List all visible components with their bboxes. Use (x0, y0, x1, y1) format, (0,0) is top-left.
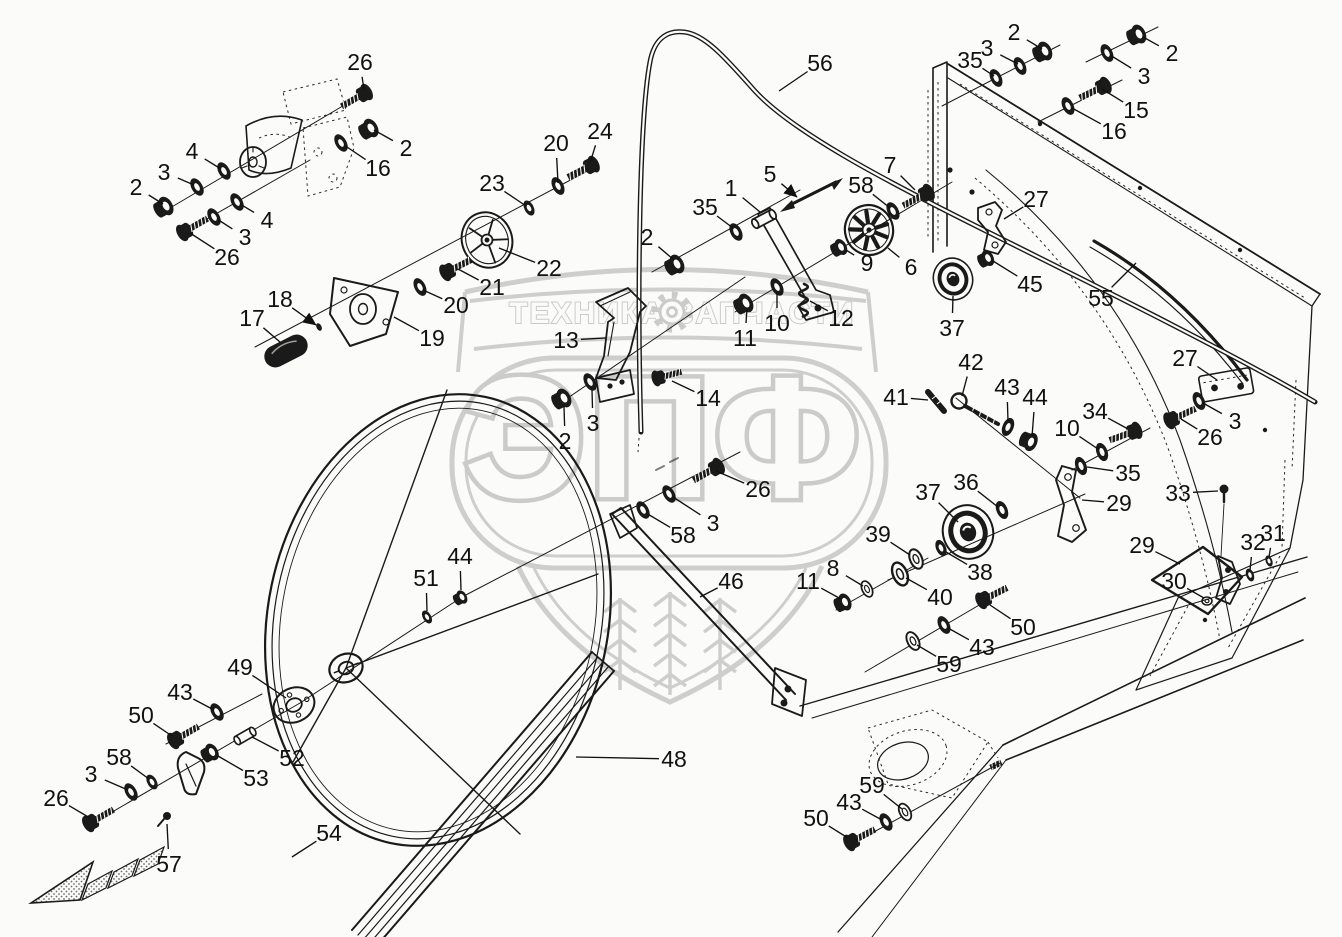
callout-label-34: 34 (1082, 398, 1108, 424)
leader-line-9 (846, 250, 854, 255)
leader-line-34 (1108, 418, 1128, 429)
callout-label-3: 3 (1138, 63, 1151, 89)
callout-label-16: 16 (1101, 118, 1127, 144)
leader-line-2 (658, 247, 674, 260)
leader-line-43 (1007, 402, 1008, 421)
callout-label-5: 5 (764, 161, 777, 187)
leader-line-3 (592, 390, 593, 408)
leader-line-29 (1155, 552, 1180, 564)
callout-label-11: 11 (796, 568, 820, 594)
link-rod (780, 178, 843, 212)
grease-screw (1220, 485, 1229, 557)
callout-label-3: 3 (239, 224, 252, 250)
leader-line-54 (292, 841, 316, 857)
leader-line-39 (891, 542, 911, 555)
callout-label-59: 59 (936, 651, 962, 677)
callout-label-52: 52 (279, 745, 305, 771)
callout-label-17: 17 (239, 305, 265, 331)
callout-label-2: 2 (641, 224, 654, 250)
leader-line-15 (1102, 89, 1123, 102)
callout-label-8: 8 (827, 555, 840, 581)
callout-label-3: 3 (158, 159, 171, 185)
callout-label-2: 2 (559, 428, 572, 454)
callout-label-29: 29 (1129, 532, 1155, 558)
callout-label-36: 36 (953, 469, 979, 495)
callout-label-19: 19 (419, 325, 445, 351)
leader-line-10 (1079, 436, 1098, 449)
callout-label-43: 43 (994, 374, 1020, 400)
callout-label-59: 59 (859, 772, 885, 798)
callout-label-10: 10 (1054, 415, 1080, 441)
leader-line-56 (779, 72, 808, 92)
callout-label-6: 6 (905, 254, 918, 280)
leader-line-5 (781, 184, 797, 197)
callout-label-49: 49 (227, 654, 253, 680)
leader-line-46 (700, 588, 718, 597)
callout-label-50: 50 (1010, 614, 1036, 640)
leader-line-20 (423, 290, 442, 299)
leader-line-58 (131, 766, 149, 779)
leader-line-48 (576, 757, 659, 759)
leader-line-2 (564, 406, 565, 426)
callout-label-27: 27 (1172, 345, 1198, 371)
callout-label-15: 15 (1123, 97, 1149, 123)
leader-line-3 (105, 780, 128, 790)
leader-line-43 (193, 699, 214, 710)
leader-line-40 (906, 578, 927, 590)
callout-label-13: 13 (553, 327, 579, 353)
clevis-rod (952, 394, 999, 426)
callout-label-57: 57 (156, 851, 182, 877)
leader-line-35 (1087, 467, 1113, 471)
drive-belt (352, 652, 614, 937)
callout-label-4: 4 (186, 138, 199, 164)
callout-label-24: 24 (587, 118, 613, 144)
callout-label-50: 50 (803, 805, 829, 831)
leader-line-59 (884, 794, 902, 809)
callout-label-58: 58 (848, 172, 874, 198)
callout-label-2: 2 (400, 135, 413, 161)
leader-line-26 (69, 806, 90, 818)
callout-label-40: 40 (927, 584, 953, 610)
callout-label-26: 26 (214, 244, 240, 270)
callout-label-26: 26 (1197, 424, 1223, 450)
callout-label-26: 26 (745, 476, 771, 502)
callout-label-29: 29 (1106, 490, 1132, 516)
callout-label-56: 56 (807, 50, 833, 76)
handle-grip (261, 331, 312, 371)
parts-diagram-page: ТЕХНИКА ЗАПЧАСТИ ЭПФ (0, 0, 1342, 937)
callout-label-10: 10 (764, 310, 790, 336)
callout-label-51: 51 (413, 565, 439, 591)
leader-line-16 (344, 145, 366, 160)
callout-label-12: 12 (828, 305, 854, 331)
cone-pin-57 (158, 812, 171, 826)
leader-line-3 (1110, 55, 1131, 68)
callout-label-58: 58 (106, 744, 132, 770)
leader-line-1 (743, 198, 760, 212)
leader-line-53 (218, 756, 243, 771)
leader-line-50 (990, 605, 1011, 619)
callout-label-9: 9 (861, 250, 874, 276)
leader-line-2 (1143, 37, 1159, 46)
callout-label-39: 39 (865, 521, 891, 547)
callout-label-26: 26 (43, 785, 69, 811)
callout-label-30: 30 (1161, 568, 1187, 594)
leader-line-43 (948, 628, 969, 640)
callout-label-2: 2 (1008, 19, 1021, 45)
strap-bracket-29 (1056, 466, 1086, 542)
leader-line-6 (888, 248, 899, 257)
callout-label-44: 44 (1022, 384, 1048, 410)
leader-line-36 (978, 491, 998, 507)
callout-label-55: 55 (1088, 285, 1114, 311)
callout-label-3: 3 (587, 410, 600, 436)
leader-line-41 (911, 398, 928, 400)
callout-label-4: 4 (261, 207, 274, 233)
leader-line-27 (1004, 207, 1023, 219)
callout-label-35: 35 (692, 194, 718, 220)
callout-label-46: 46 (718, 568, 744, 594)
leader-line-45 (993, 261, 1017, 276)
callout-label-20: 20 (443, 292, 469, 318)
callout-label-16: 16 (365, 155, 391, 181)
leader-line-11 (821, 588, 841, 599)
callout-label-35: 35 (957, 47, 983, 73)
leader-line-55 (1112, 263, 1136, 287)
callout-label-3: 3 (85, 761, 98, 787)
callout-label-31: 31 (1260, 520, 1286, 546)
callout-label-43: 43 (836, 789, 862, 815)
watermark-brand-big: ЭПФ (464, 342, 863, 534)
leader-line-19 (394, 317, 419, 331)
leader-line-37 (953, 296, 954, 313)
callout-label-44: 44 (447, 543, 473, 569)
callout-label-26: 26 (347, 49, 373, 75)
watermark-shield: ТЕХНИКА ЗАПЧАСТИ ЭПФ (452, 270, 886, 703)
leader-line-44 (460, 571, 461, 590)
leader-line-59 (917, 645, 936, 656)
leader-line-8 (846, 576, 863, 586)
callout-label-43: 43 (969, 634, 995, 660)
callout-label-21: 21 (479, 274, 505, 300)
callout-label-1: 1 (725, 175, 738, 201)
leader-line-52 (252, 737, 279, 751)
leader-line-50 (829, 826, 848, 838)
leader-line-31 (1269, 548, 1271, 557)
leader-line-32 (1250, 557, 1251, 570)
callout-label-35: 35 (1115, 460, 1141, 486)
callout-label-53: 53 (243, 765, 269, 791)
callout-label-38: 38 (967, 559, 993, 585)
callout-label-33: 33 (1165, 480, 1191, 506)
callout-label-14: 14 (695, 385, 721, 411)
callout-label-50: 50 (128, 702, 154, 728)
leader-line-51 (427, 593, 428, 611)
direction-arrow-icon (31, 847, 164, 903)
leader-line-43 (862, 809, 882, 820)
callout-label-41: 41 (883, 384, 909, 410)
callout-label-45: 45 (1017, 271, 1043, 297)
leader-line-21 (458, 269, 479, 280)
callout-label-48: 48 (661, 746, 687, 772)
callout-label-58: 58 (670, 522, 696, 548)
diagram-canvas: ТЕХНИКА ЗАПЧАСТИ ЭПФ (0, 0, 1342, 937)
callout-label-42: 42 (958, 349, 984, 375)
callout-label-54: 54 (316, 820, 342, 846)
callout-label-22: 22 (536, 255, 562, 281)
tensioner-arm (178, 752, 205, 794)
leader-line-57 (167, 824, 168, 849)
callout-label-18: 18 (267, 286, 293, 312)
leader-line-23 (504, 191, 526, 206)
leader-line-26 (190, 233, 214, 249)
callout-label-43: 43 (167, 679, 193, 705)
callout-label-27: 27 (1023, 186, 1049, 212)
callout-label-7: 7 (884, 152, 897, 178)
callout-label-3: 3 (1229, 408, 1242, 434)
callout-label-11: 11 (733, 325, 757, 351)
leader-line-42 (962, 377, 967, 397)
roll-pin (928, 392, 944, 411)
callout-label-37: 37 (915, 479, 941, 505)
leader-line-26 (1181, 419, 1197, 429)
callout-label-2: 2 (1166, 40, 1179, 66)
leader-line-3 (1203, 403, 1222, 414)
leader-line-35 (717, 216, 733, 228)
leader-line-50 (153, 723, 172, 736)
leader-line-16 (1072, 108, 1101, 124)
leader-line-29 (1082, 500, 1104, 502)
callout-label-20: 20 (543, 130, 569, 156)
seal-strip (1090, 241, 1247, 384)
callout-label-3: 3 (981, 35, 994, 61)
callout-label-2: 2 (130, 174, 143, 200)
callout-label-23: 23 (479, 170, 505, 196)
callout-label-37: 37 (939, 315, 965, 341)
callout-label-3: 3 (707, 510, 720, 536)
